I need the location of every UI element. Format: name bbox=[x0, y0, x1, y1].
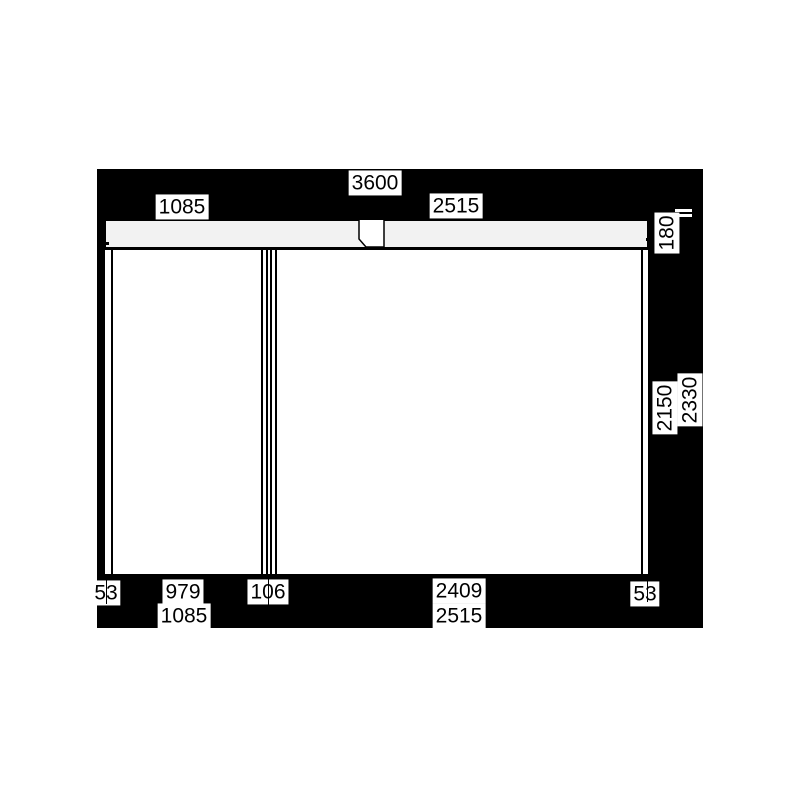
guide-rail-right bbox=[641, 250, 648, 574]
dim-top-right-section: 2515 bbox=[430, 193, 483, 218]
dim-bottom-right-panel: 2409 bbox=[433, 578, 486, 603]
guide-rail-left bbox=[105, 250, 113, 574]
dim-bottom-right-rail: 53 bbox=[630, 581, 659, 606]
dim-bottom-left-panel: 979 bbox=[162, 579, 203, 604]
slat-panel-right bbox=[277, 250, 641, 574]
center-mullion bbox=[261, 250, 277, 574]
dimension-marker-dot-left bbox=[106, 242, 109, 245]
header-notch-icon bbox=[358, 220, 386, 250]
shutter-body bbox=[105, 250, 648, 576]
extension-line-left bbox=[106, 576, 107, 604]
dim-total-width: 3600 bbox=[349, 170, 402, 195]
dim-header-height: 180 bbox=[654, 212, 679, 253]
center-mullion-core bbox=[266, 250, 272, 574]
dimension-marker-dot-right bbox=[646, 238, 649, 241]
dim-bottom-left-section: 1085 bbox=[158, 603, 211, 628]
dim-panel-height: 2150 bbox=[652, 382, 677, 435]
extension-line-right bbox=[647, 576, 648, 602]
dim-bottom-right-section: 2515 bbox=[433, 603, 486, 628]
dim-top-left-section: 1085 bbox=[156, 194, 209, 219]
extension-line-mullion bbox=[268, 576, 269, 607]
dim-total-height: 2330 bbox=[677, 374, 702, 427]
technical-drawing-page: 3600 1085 2515 180 2150 2330 53 979 106 … bbox=[0, 0, 800, 800]
slat-panel-left bbox=[113, 250, 261, 574]
